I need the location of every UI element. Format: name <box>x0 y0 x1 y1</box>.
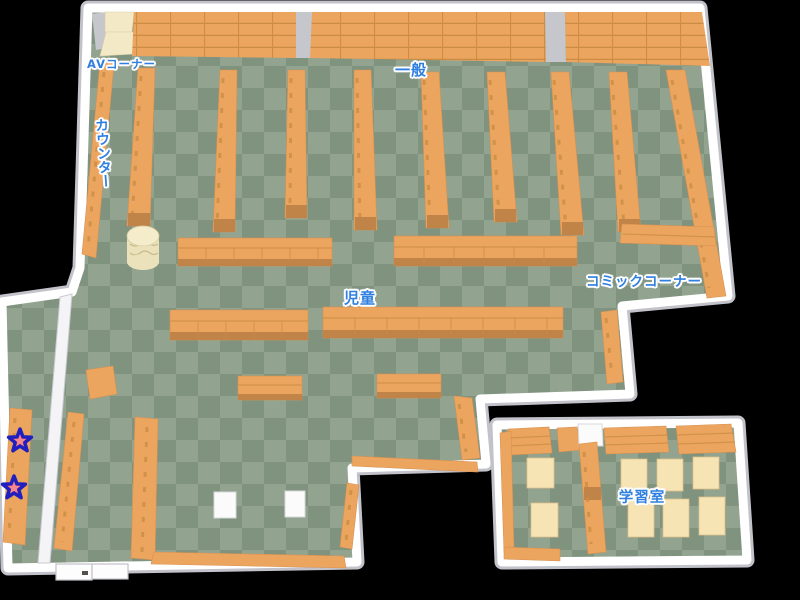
library-floor-map: AVコーナー カウンター 一般 児童 コミックコーナー 学習室 <box>0 0 800 600</box>
label-study-room: 学習室 <box>619 486 666 507</box>
label-comic-corner: コミックコーナー <box>586 270 702 290</box>
annex-wall-shelves <box>508 424 736 455</box>
annex-bottom-shelf <box>504 547 560 561</box>
floor-map-graphic <box>0 0 800 600</box>
label-children: 児童 <box>344 287 376 308</box>
kids-table <box>86 366 117 399</box>
label-general: 一般 <box>395 59 427 80</box>
kiosk-table <box>214 492 236 518</box>
av-shelf <box>105 12 134 32</box>
label-av-corner: AVコーナー <box>87 56 156 72</box>
kiosk-table <box>285 491 305 517</box>
rotating-rack <box>127 226 159 270</box>
entrance-door <box>56 564 128 580</box>
av-desk <box>100 32 136 56</box>
